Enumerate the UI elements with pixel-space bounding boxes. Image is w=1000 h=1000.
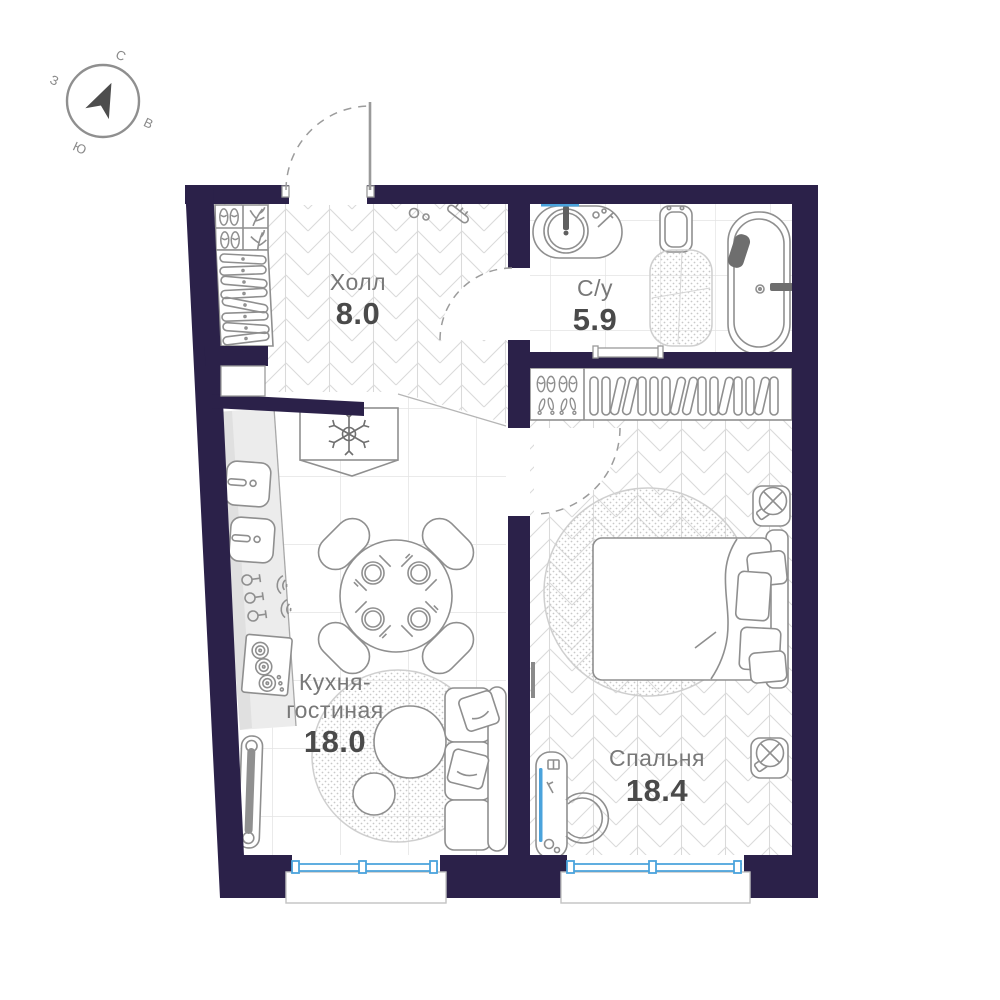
label-bathroom: С/у 5.9 bbox=[573, 275, 618, 337]
bathroom-area: 5.9 bbox=[573, 302, 618, 337]
window-right bbox=[561, 855, 750, 903]
hall-name: Холл bbox=[330, 269, 386, 295]
kitchen-living-name-line1: Кухня- bbox=[299, 669, 371, 695]
hall-coat-closet bbox=[216, 250, 273, 346]
label-hall: Холл 8.0 bbox=[330, 269, 386, 331]
pouf-large bbox=[374, 706, 446, 778]
window-sill bbox=[561, 872, 750, 903]
wall-jog-upper bbox=[204, 346, 268, 366]
wall-hall-bath bbox=[508, 204, 530, 268]
dining-table bbox=[340, 540, 452, 652]
door-swing-arc bbox=[286, 106, 370, 190]
nightstand-bottom bbox=[751, 738, 788, 778]
compass-north: С bbox=[113, 47, 128, 65]
hall-area: 8.0 bbox=[336, 296, 381, 331]
wall-top bbox=[185, 185, 818, 204]
stove bbox=[241, 634, 292, 696]
compass-south: Ю bbox=[71, 139, 89, 158]
bedroom-name: Спальня bbox=[609, 745, 705, 771]
wall-tv bbox=[531, 662, 535, 698]
bathroom-name: С/у bbox=[577, 275, 613, 301]
sofa bbox=[445, 687, 506, 851]
bedroom-area: 18.4 bbox=[626, 773, 689, 808]
bathtub bbox=[726, 212, 793, 354]
pouf-small bbox=[353, 773, 395, 815]
floorplan-page: С В Ю З Холл 8.0 С/у 5.9 Кухня- гостиная… bbox=[0, 0, 1000, 1000]
duct-shaft bbox=[221, 366, 265, 396]
compass-west: З bbox=[48, 72, 62, 89]
hall-shoe-cabinet bbox=[215, 205, 268, 251]
wall-mid bbox=[508, 340, 530, 428]
toilet bbox=[660, 206, 692, 252]
desk-accent bbox=[539, 768, 543, 842]
kitchen-living-area: 18.0 bbox=[304, 724, 366, 759]
floorplan-svg: С В Ю З Холл 8.0 С/у 5.9 Кухня- гостиная… bbox=[0, 0, 1000, 1000]
bathroom-vanity-sink bbox=[533, 206, 622, 258]
nightstand-top bbox=[753, 486, 790, 526]
bathroom-threshold bbox=[593, 346, 663, 358]
compass-east: В bbox=[141, 115, 155, 132]
wall-right bbox=[792, 185, 818, 898]
bath-mat bbox=[650, 250, 712, 346]
bed bbox=[593, 530, 788, 688]
entrance-door bbox=[282, 102, 374, 205]
wall-living-bedroom bbox=[508, 516, 530, 858]
window-left bbox=[286, 855, 446, 903]
kitchen-living-name-line2: гостиная bbox=[286, 697, 384, 723]
window-sill bbox=[286, 872, 446, 903]
wardrobe bbox=[530, 368, 792, 420]
compass: С В Ю З bbox=[48, 47, 156, 158]
